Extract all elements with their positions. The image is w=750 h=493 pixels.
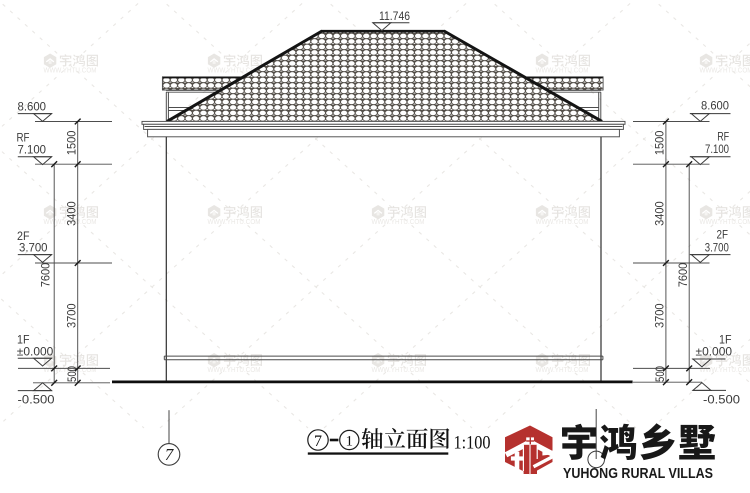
svg-text:WWW.YHTU.COM: WWW.YHTU.COM bbox=[536, 219, 589, 226]
svg-text:1:100: 1:100 bbox=[454, 434, 491, 454]
svg-text:WWW.YHTU.COM: WWW.YHTU.COM bbox=[208, 219, 261, 226]
svg-text:WWW.YHTU.COM: WWW.YHTU.COM bbox=[700, 67, 750, 74]
svg-text:1500: 1500 bbox=[654, 131, 667, 156]
svg-text:500: 500 bbox=[66, 366, 79, 382]
svg-text:YUHONG RURAL VILLAS: YUHONG RURAL VILLAS bbox=[563, 465, 713, 482]
svg-text:3.700: 3.700 bbox=[19, 241, 48, 255]
svg-text:WWW.YHTU.COM: WWW.YHTU.COM bbox=[208, 367, 261, 374]
svg-text:WWW.YHTU.COM: WWW.YHTU.COM bbox=[44, 67, 97, 74]
svg-text:RF: RF bbox=[717, 129, 729, 143]
svg-text:7.100: 7.100 bbox=[18, 143, 47, 157]
svg-text:WWW.YHTU.COM: WWW.YHTU.COM bbox=[700, 219, 750, 226]
svg-text:7600: 7600 bbox=[40, 263, 53, 288]
svg-text:7.100: 7.100 bbox=[705, 142, 729, 156]
svg-text:3400: 3400 bbox=[65, 201, 78, 226]
svg-text:3400: 3400 bbox=[654, 201, 667, 226]
svg-text:1500: 1500 bbox=[65, 131, 78, 156]
svg-text:11.746: 11.746 bbox=[379, 9, 410, 23]
svg-text:WWW.YHTU.COM: WWW.YHTU.COM bbox=[372, 219, 425, 226]
svg-text:-0.500: -0.500 bbox=[703, 392, 740, 406]
svg-text:7600: 7600 bbox=[677, 263, 690, 288]
svg-text:1: 1 bbox=[346, 433, 354, 449]
svg-text:8.600: 8.600 bbox=[701, 98, 729, 112]
svg-text:±0.000: ±0.000 bbox=[17, 344, 54, 358]
svg-text:3700: 3700 bbox=[654, 303, 667, 328]
svg-text:WWW.YHTU.COM: WWW.YHTU.COM bbox=[536, 67, 589, 74]
svg-text:8.600: 8.600 bbox=[18, 100, 47, 114]
svg-text:500: 500 bbox=[654, 366, 667, 382]
svg-text:WWW.YHTU.COM: WWW.YHTU.COM bbox=[372, 367, 425, 374]
svg-text:±0.000: ±0.000 bbox=[696, 344, 733, 358]
svg-text:7: 7 bbox=[314, 433, 322, 450]
svg-text:WWW.YHTU.COM: WWW.YHTU.COM bbox=[536, 367, 589, 374]
svg-text:3.700: 3.700 bbox=[705, 240, 729, 254]
svg-text:-0.500: -0.500 bbox=[18, 392, 55, 406]
svg-text:3700: 3700 bbox=[65, 303, 78, 328]
